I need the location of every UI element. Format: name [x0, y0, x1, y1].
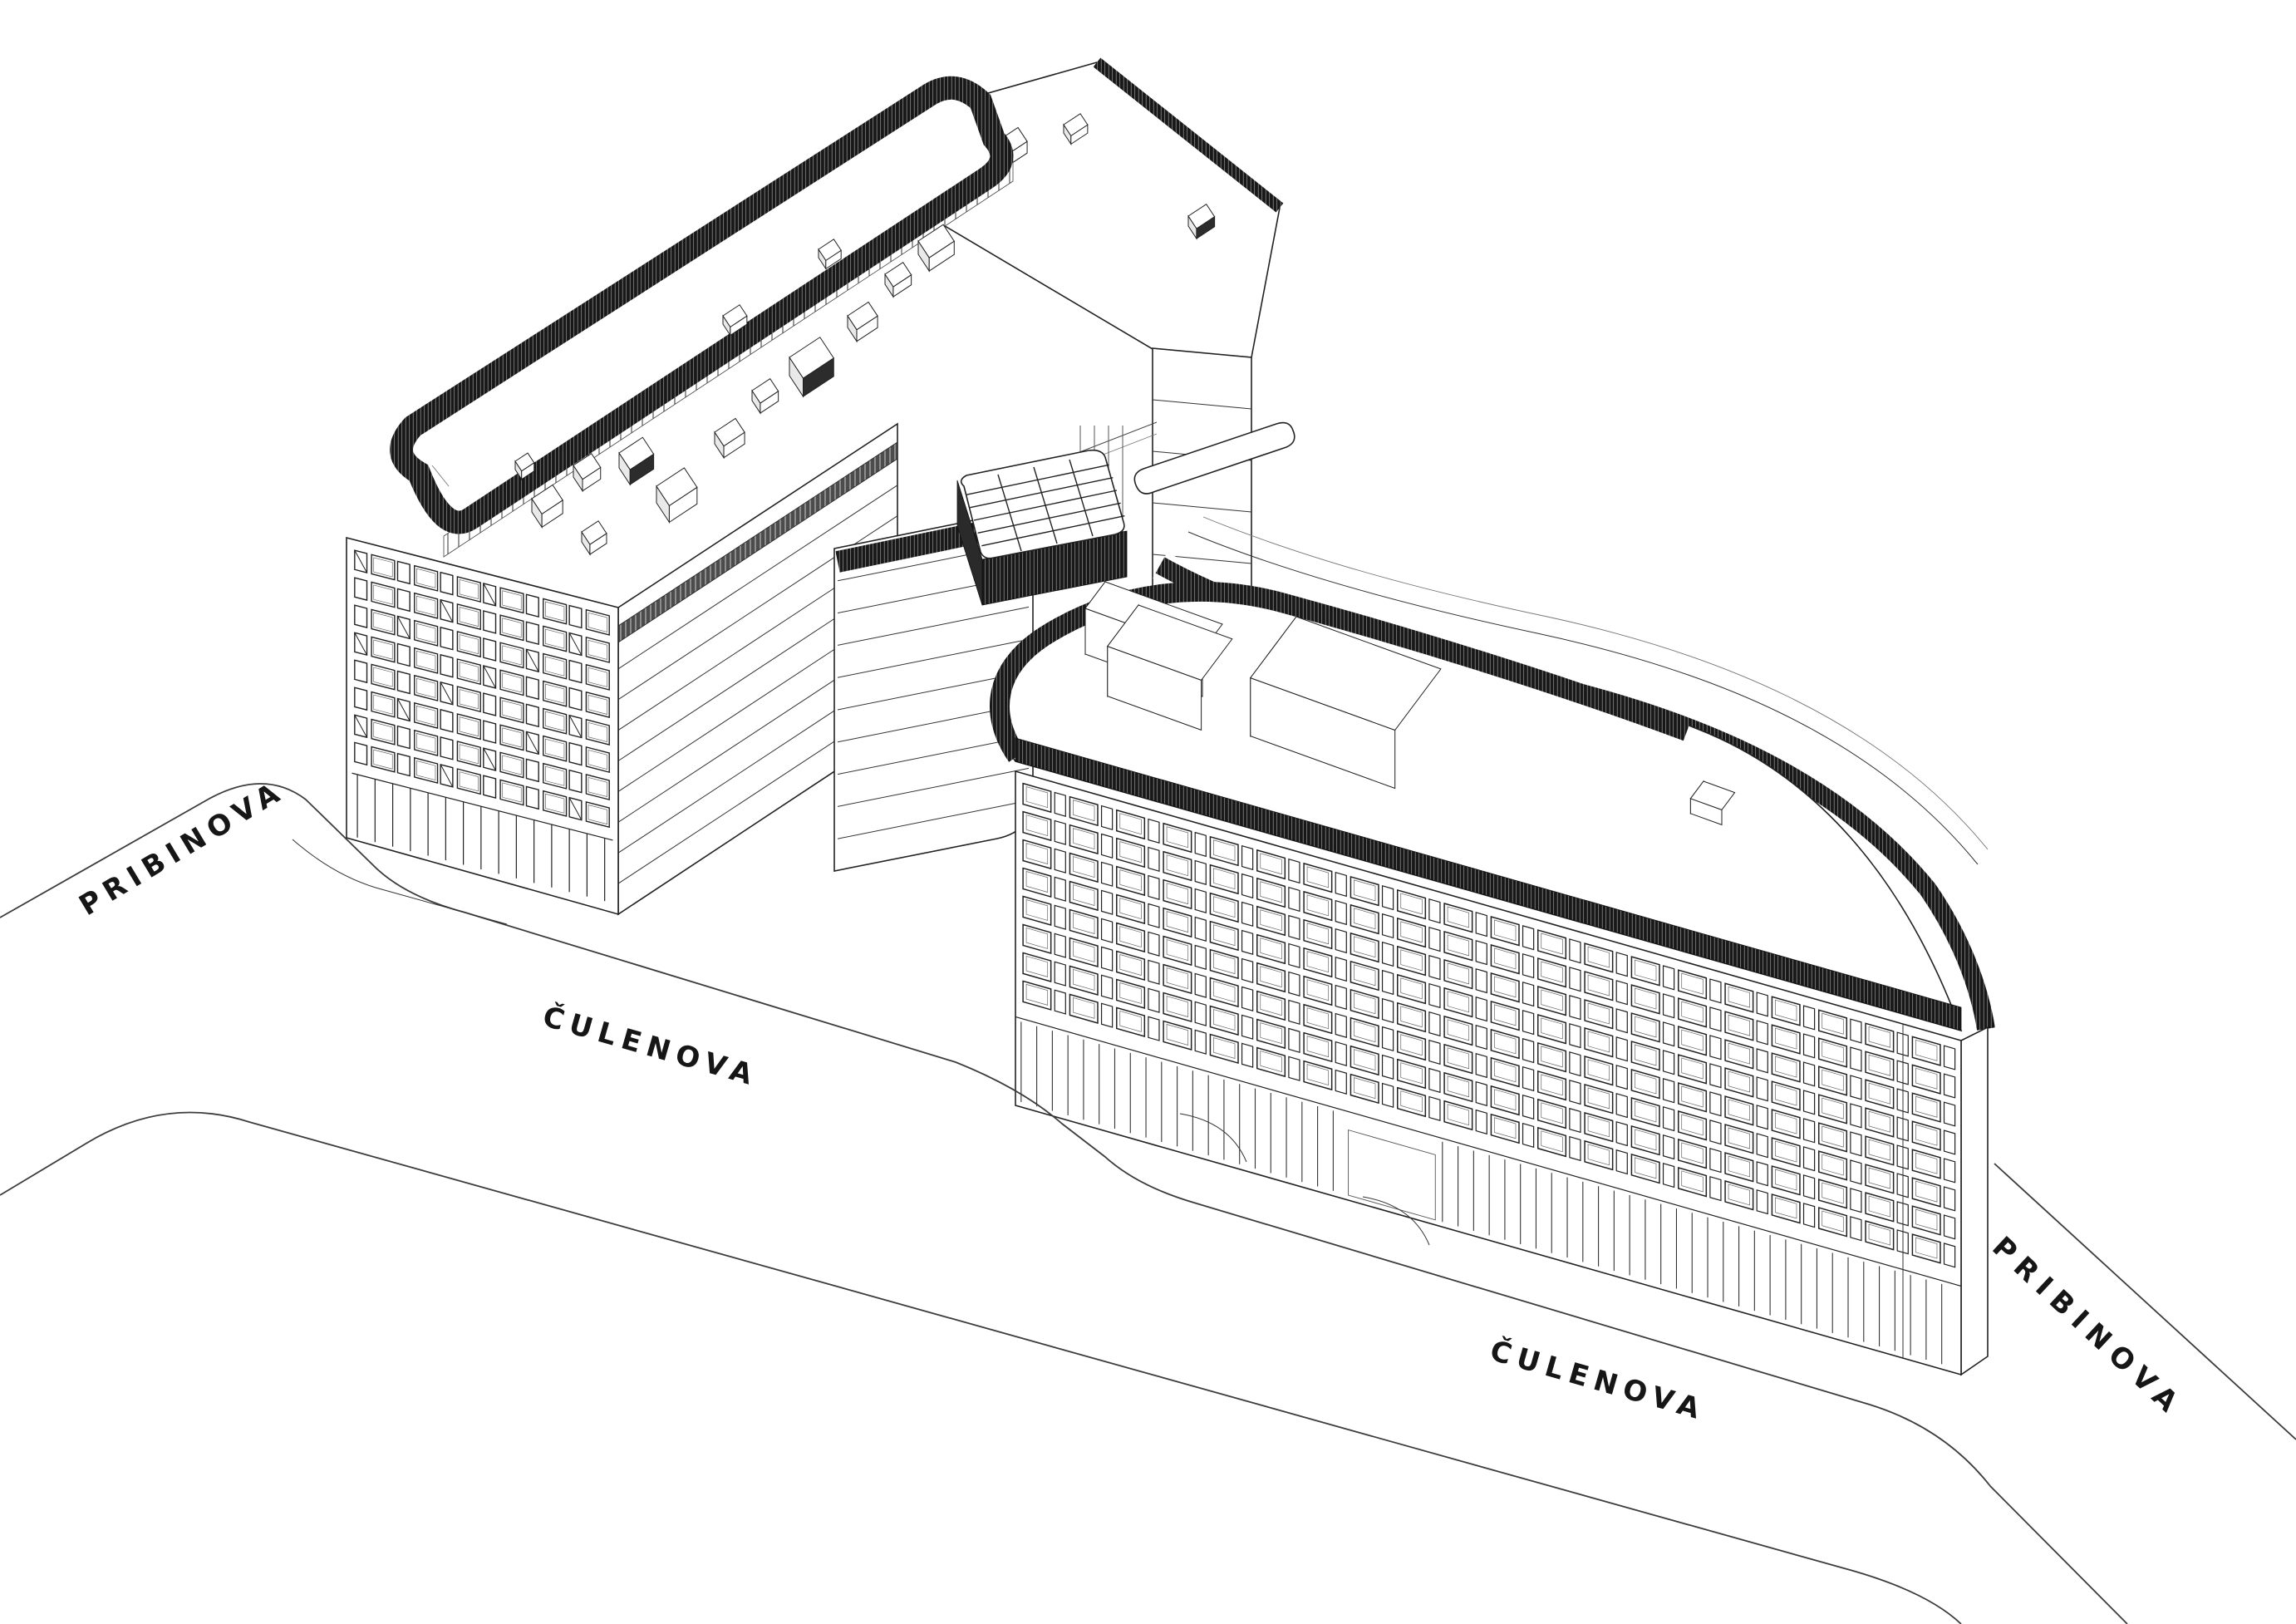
street-label-culenova-left: ČULENOVA: [539, 999, 763, 1093]
building-a: [347, 88, 1033, 914]
street-label-pribinova-right: PRIBINOVA: [1985, 1230, 2190, 1424]
building-a-roof: [401, 88, 1001, 523]
street-label-pribinova-left: PRIBINOVA: [74, 774, 292, 923]
building-b: [994, 517, 1988, 1375]
axonometric-site-drawing: PRIBINOVA ČULENOVA ČULENOVA PRIBINOVA: [0, 0, 2296, 1624]
building-b-prow-side-face: [1961, 1027, 1988, 1375]
architectural-drawing-canvas: PRIBINOVA ČULENOVA ČULENOVA PRIBINOVA: [0, 0, 2296, 1624]
